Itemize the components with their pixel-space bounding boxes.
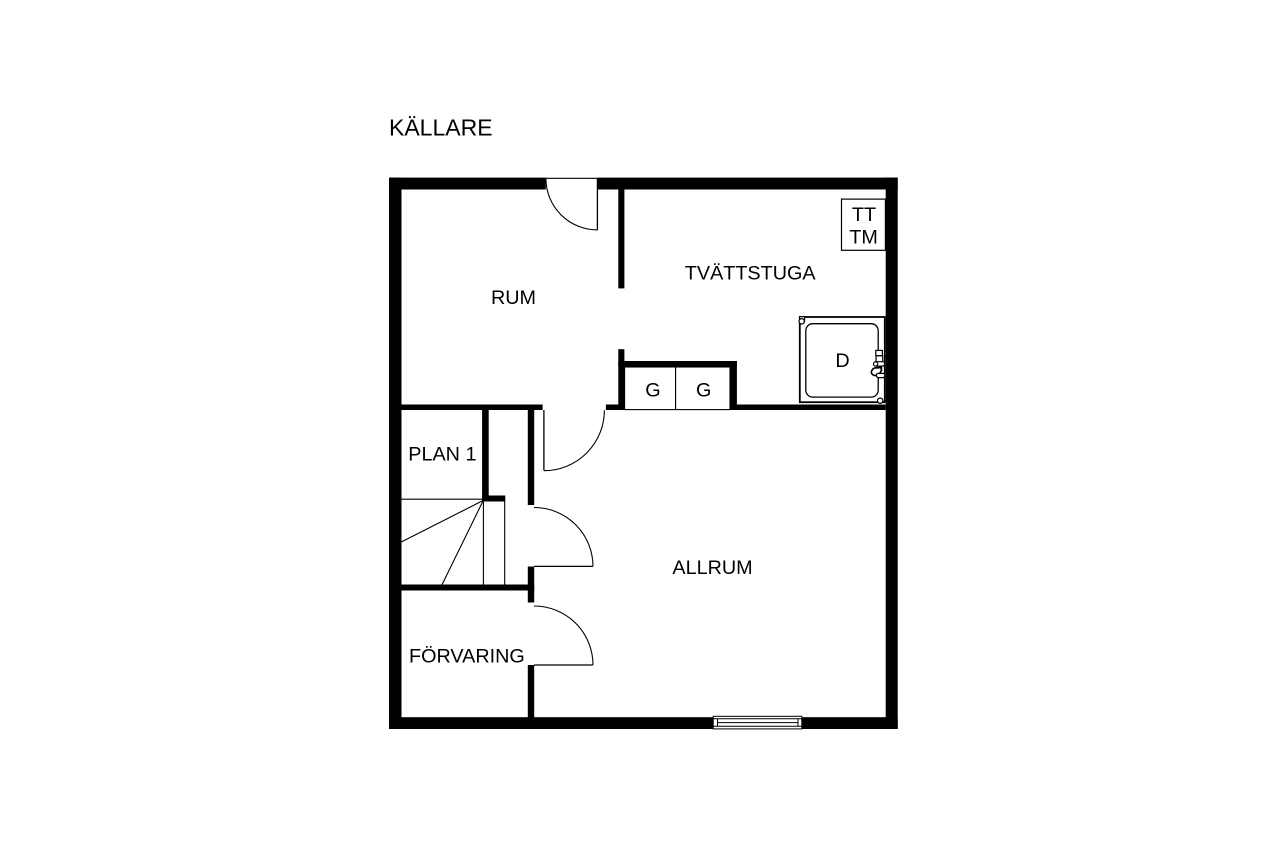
svg-text:TM: TM (849, 226, 878, 248)
svg-text:ALLRUM: ALLRUM (672, 557, 752, 579)
svg-text:TVÄTTSTUGA: TVÄTTSTUGA (685, 263, 817, 285)
svg-text:D: D (835, 350, 849, 372)
svg-text:RUM: RUM (491, 287, 536, 309)
svg-text:G: G (696, 379, 711, 401)
svg-text:PLAN 1: PLAN 1 (408, 443, 476, 465)
svg-text:KÄLLARE: KÄLLARE (389, 115, 493, 141)
svg-text:G: G (645, 379, 660, 401)
svg-text:FÖRVARING: FÖRVARING (409, 646, 525, 668)
svg-text:TT: TT (852, 204, 876, 226)
